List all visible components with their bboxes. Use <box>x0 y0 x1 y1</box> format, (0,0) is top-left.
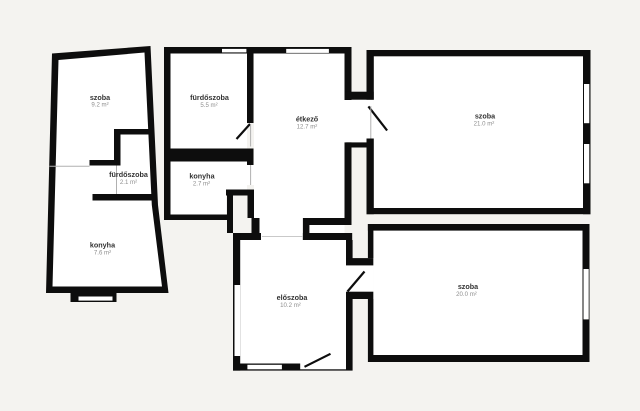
svg-text:konyha: konyha <box>90 240 116 249</box>
svg-text:étkező: étkező <box>296 115 319 124</box>
svg-text:előszoba: előszoba <box>277 293 309 302</box>
svg-text:szoba: szoba <box>90 93 111 102</box>
svg-text:szoba: szoba <box>458 282 479 291</box>
svg-text:20.0 m²: 20.0 m² <box>456 291 477 298</box>
svg-text:9.2 m²: 9.2 m² <box>91 102 108 109</box>
svg-text:7.6 m²: 7.6 m² <box>94 249 111 256</box>
svg-text:5.5 m²: 5.5 m² <box>200 102 217 109</box>
svg-text:2.1 m²: 2.1 m² <box>120 179 137 186</box>
svg-text:konyha: konyha <box>189 172 215 181</box>
svg-text:fürdőszoba: fürdőszoba <box>190 93 230 102</box>
svg-text:fürdőszoba: fürdőszoba <box>109 170 149 179</box>
svg-text:2.7 m²: 2.7 m² <box>193 181 210 188</box>
svg-text:12.7 m²: 12.7 m² <box>297 124 318 131</box>
svg-text:szoba: szoba <box>475 112 496 121</box>
svg-text:21.0 m²: 21.0 m² <box>474 121 495 128</box>
svg-text:10.2 m²: 10.2 m² <box>280 302 301 309</box>
